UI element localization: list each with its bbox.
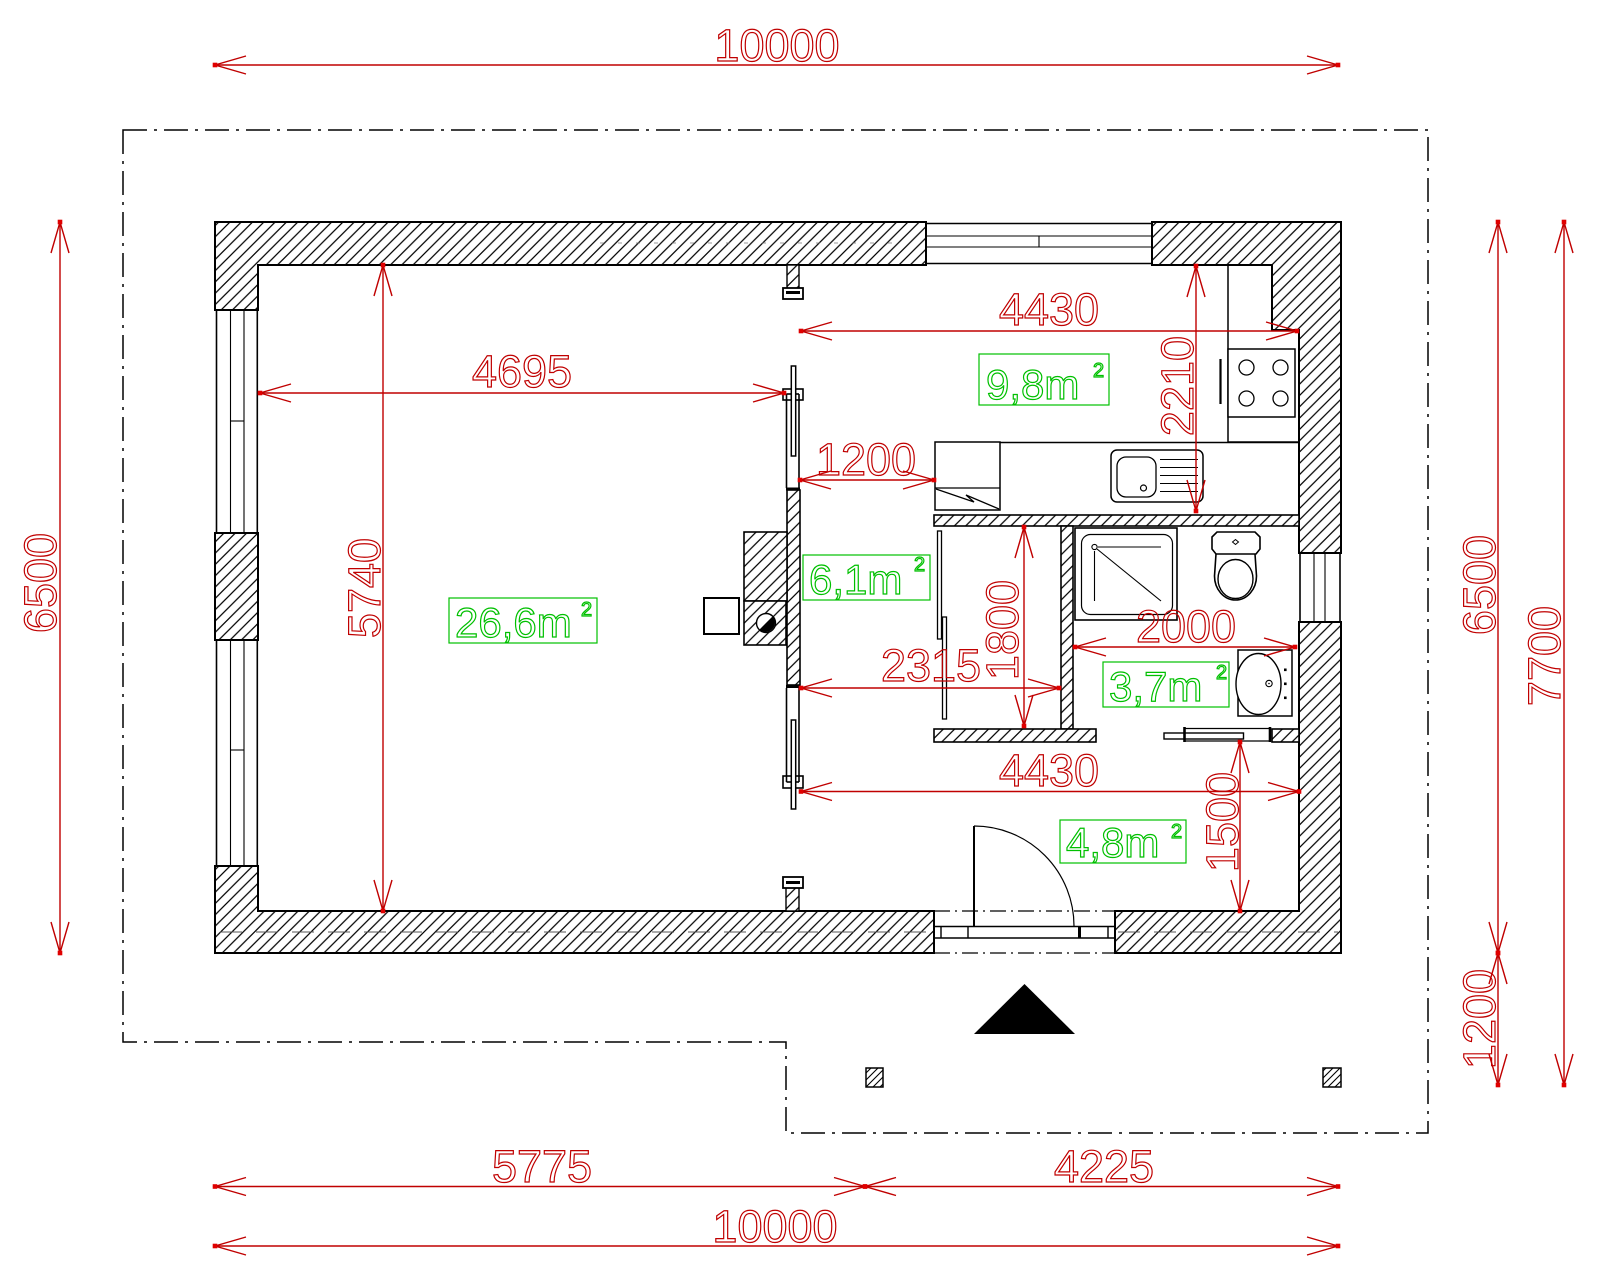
svg-text:6,1m: 6,1m: [809, 556, 902, 603]
svg-text:5775: 5775: [492, 1141, 592, 1192]
svg-text:4,8m: 4,8m: [1066, 819, 1159, 866]
svg-text:6500: 6500: [1454, 535, 1505, 635]
svg-text:10000: 10000: [714, 20, 839, 71]
svg-text:2315: 2315: [881, 640, 981, 691]
svg-text:6500: 6500: [15, 533, 66, 633]
svg-text:3,7m: 3,7m: [1109, 663, 1202, 710]
svg-text:1500: 1500: [1197, 772, 1248, 872]
svg-text:26,6m: 26,6m: [455, 599, 572, 646]
svg-text:10000: 10000: [712, 1201, 837, 1252]
svg-text:2: 2: [914, 554, 925, 576]
svg-text:2: 2: [581, 599, 592, 621]
svg-text:5740: 5740: [339, 538, 390, 638]
svg-text:2: 2: [1216, 662, 1227, 684]
svg-text:7700: 7700: [1519, 606, 1570, 706]
svg-text:2: 2: [1171, 821, 1182, 843]
svg-text:1200: 1200: [1454, 969, 1505, 1069]
svg-text:2210: 2210: [1152, 336, 1203, 436]
svg-text:4225: 4225: [1054, 1141, 1154, 1192]
svg-text:9,8m: 9,8m: [986, 361, 1079, 408]
svg-text:1800: 1800: [977, 580, 1028, 680]
svg-text:1200: 1200: [816, 434, 916, 485]
svg-text:4430: 4430: [999, 284, 1099, 335]
svg-text:2: 2: [1093, 360, 1104, 382]
svg-text:2000: 2000: [1136, 601, 1236, 652]
svg-text:4430: 4430: [999, 745, 1099, 796]
svg-text:4695: 4695: [472, 346, 572, 397]
